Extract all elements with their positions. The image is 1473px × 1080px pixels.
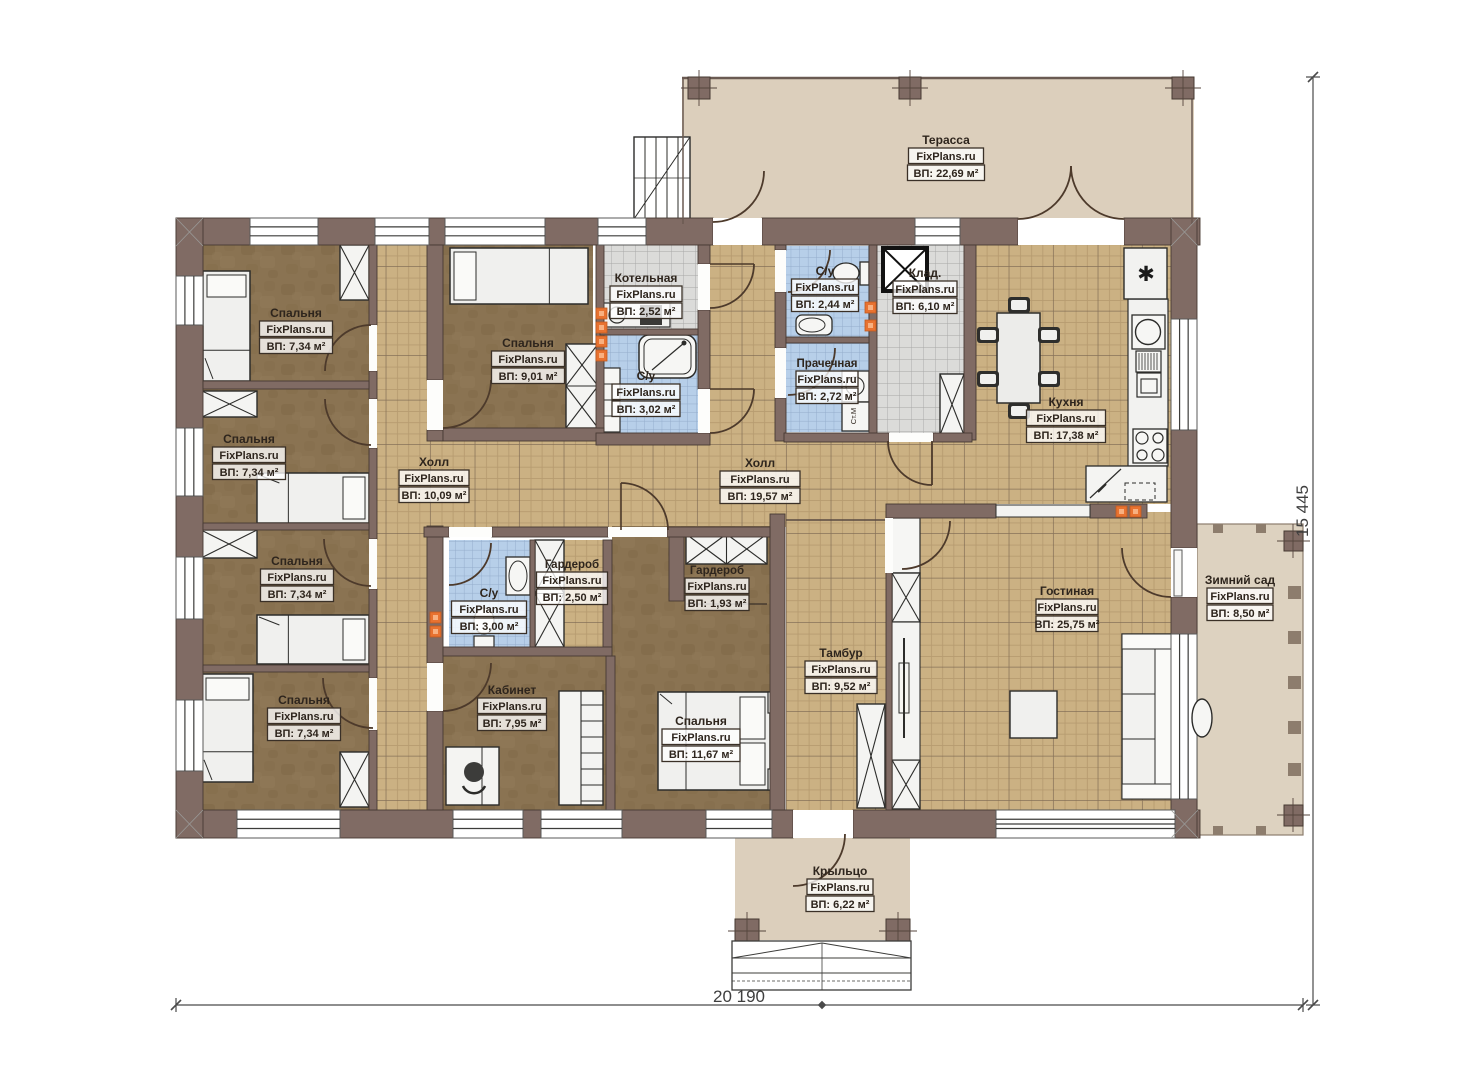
svg-text:Гостиная: Гостиная [1040,584,1094,598]
svg-text:Гардероб: Гардероб [545,559,599,571]
svg-text:ВП: 7,34 м²: ВП: 7,34 м² [268,589,327,601]
svg-text:Спальня: Спальня [271,554,323,568]
svg-text:ВП: 1,93 м²: ВП: 1,93 м² [688,598,747,610]
svg-text:FixPlans.ru: FixPlans.ru [459,604,518,616]
svg-text:ВП: 11,67 м²: ВП: 11,67 м² [669,749,734,761]
svg-text:Тамбур: Тамбур [819,646,863,660]
svg-text:ВП: 7,34 м²: ВП: 7,34 м² [220,467,279,479]
svg-text:ВП: 6,22 м²: ВП: 6,22 м² [811,899,870,911]
svg-text:Крыльцо: Крыльцо [813,864,868,878]
svg-text:Котельная: Котельная [615,271,678,285]
svg-text:Клад.: Клад. [909,266,942,280]
svg-text:ВП: 22,69 м²: ВП: 22,69 м² [914,168,979,180]
svg-text:ВП: 3,02 м²: ВП: 3,02 м² [617,404,676,416]
svg-text:FixPlans.ru: FixPlans.ru [482,701,541,713]
svg-text:FixPlans.ru: FixPlans.ru [1037,602,1096,614]
svg-text:Терасса: Терасса [922,133,970,147]
svg-text:FixPlans.ru: FixPlans.ru [404,473,463,485]
svg-text:ВП: 25,75 м²: ВП: 25,75 м² [1035,619,1100,631]
svg-text:FixPlans.ru: FixPlans.ru [542,575,601,587]
svg-text:ВП: 7,34 м²: ВП: 7,34 м² [275,728,334,740]
svg-text:Спальня: Спальня [675,714,727,728]
svg-text:FixPlans.ru: FixPlans.ru [274,711,333,723]
svg-text:Холл: Холл [419,455,449,469]
svg-text:ВП: 7,95 м²: ВП: 7,95 м² [483,718,542,730]
svg-text:FixPlans.ru: FixPlans.ru [895,284,954,296]
svg-text:ВП: 10,09 м²: ВП: 10,09 м² [402,490,467,502]
svg-text:Холл: Холл [745,456,775,470]
svg-text:FixPlans.ru: FixPlans.ru [916,151,975,163]
svg-text:FixPlans.ru: FixPlans.ru [811,664,870,676]
svg-text:Кабинет: Кабинет [488,683,537,697]
svg-text:ВП: 6,10 м²: ВП: 6,10 м² [896,301,955,313]
svg-text:Кухня: Кухня [1048,395,1083,409]
svg-text:FixPlans.ru: FixPlans.ru [810,882,869,894]
svg-text:ВП: 3,00 м²: ВП: 3,00 м² [460,621,519,633]
svg-text:FixPlans.ru: FixPlans.ru [1036,413,1095,425]
svg-text:FixPlans.ru: FixPlans.ru [267,572,326,584]
svg-text:ВП: 2,72 м²: ВП: 2,72 м² [798,391,857,403]
svg-text:Зимний сад: Зимний сад [1205,573,1276,587]
svg-text:ВП: 7,34 м²: ВП: 7,34 м² [267,341,326,353]
svg-text:Гардероб: Гардероб [690,565,744,577]
svg-text:С/у: С/у [637,369,656,383]
svg-text:15 445: 15 445 [1293,485,1312,537]
svg-text:ВП: 2,50 м²: ВП: 2,50 м² [543,592,602,604]
svg-text:FixPlans.ru: FixPlans.ru [730,474,789,486]
svg-text:ВП: 9,52 м²: ВП: 9,52 м² [812,681,871,693]
svg-text:С/у: С/у [480,586,499,600]
svg-text:20 190: 20 190 [713,987,765,1006]
svg-text:Спальня: Спальня [270,306,322,320]
svg-text:FixPlans.ru: FixPlans.ru [687,581,746,593]
svg-text:FixPlans.ru: FixPlans.ru [219,450,278,462]
svg-text:FixPlans.ru: FixPlans.ru [797,374,856,386]
svg-text:Прачечная: Прачечная [797,358,858,370]
svg-text:Спальня: Спальня [502,336,554,350]
svg-text:FixPlans.ru: FixPlans.ru [498,354,557,366]
svg-text:ВП: 2,44 м²: ВП: 2,44 м² [796,299,855,311]
svg-text:Спальня: Спальня [278,693,330,707]
svg-text:ВП: 17,38 м²: ВП: 17,38 м² [1034,430,1099,442]
svg-text:✱: ✱ [1137,263,1155,286]
svg-text:ВП: 2,52 м²: ВП: 2,52 м² [617,306,676,318]
svg-text:ВП: 19,57 м²: ВП: 19,57 м² [728,491,793,503]
svg-text:Спальня: Спальня [223,432,275,446]
svg-text:FixPlans.ru: FixPlans.ru [616,387,675,399]
svg-text:Ст.М: Ст.М [849,408,858,424]
svg-text:FixPlans.ru: FixPlans.ru [1210,591,1269,603]
svg-text:FixPlans.ru: FixPlans.ru [671,732,730,744]
svg-text:ВП: 8,50 м²: ВП: 8,50 м² [1211,608,1270,620]
svg-text:FixPlans.ru: FixPlans.ru [795,282,854,294]
svg-text:FixPlans.ru: FixPlans.ru [266,324,325,336]
svg-text:С/у: С/у [816,264,835,278]
svg-text:ВП: 9,01 м²: ВП: 9,01 м² [499,371,558,383]
svg-text:FixPlans.ru: FixPlans.ru [616,289,675,301]
